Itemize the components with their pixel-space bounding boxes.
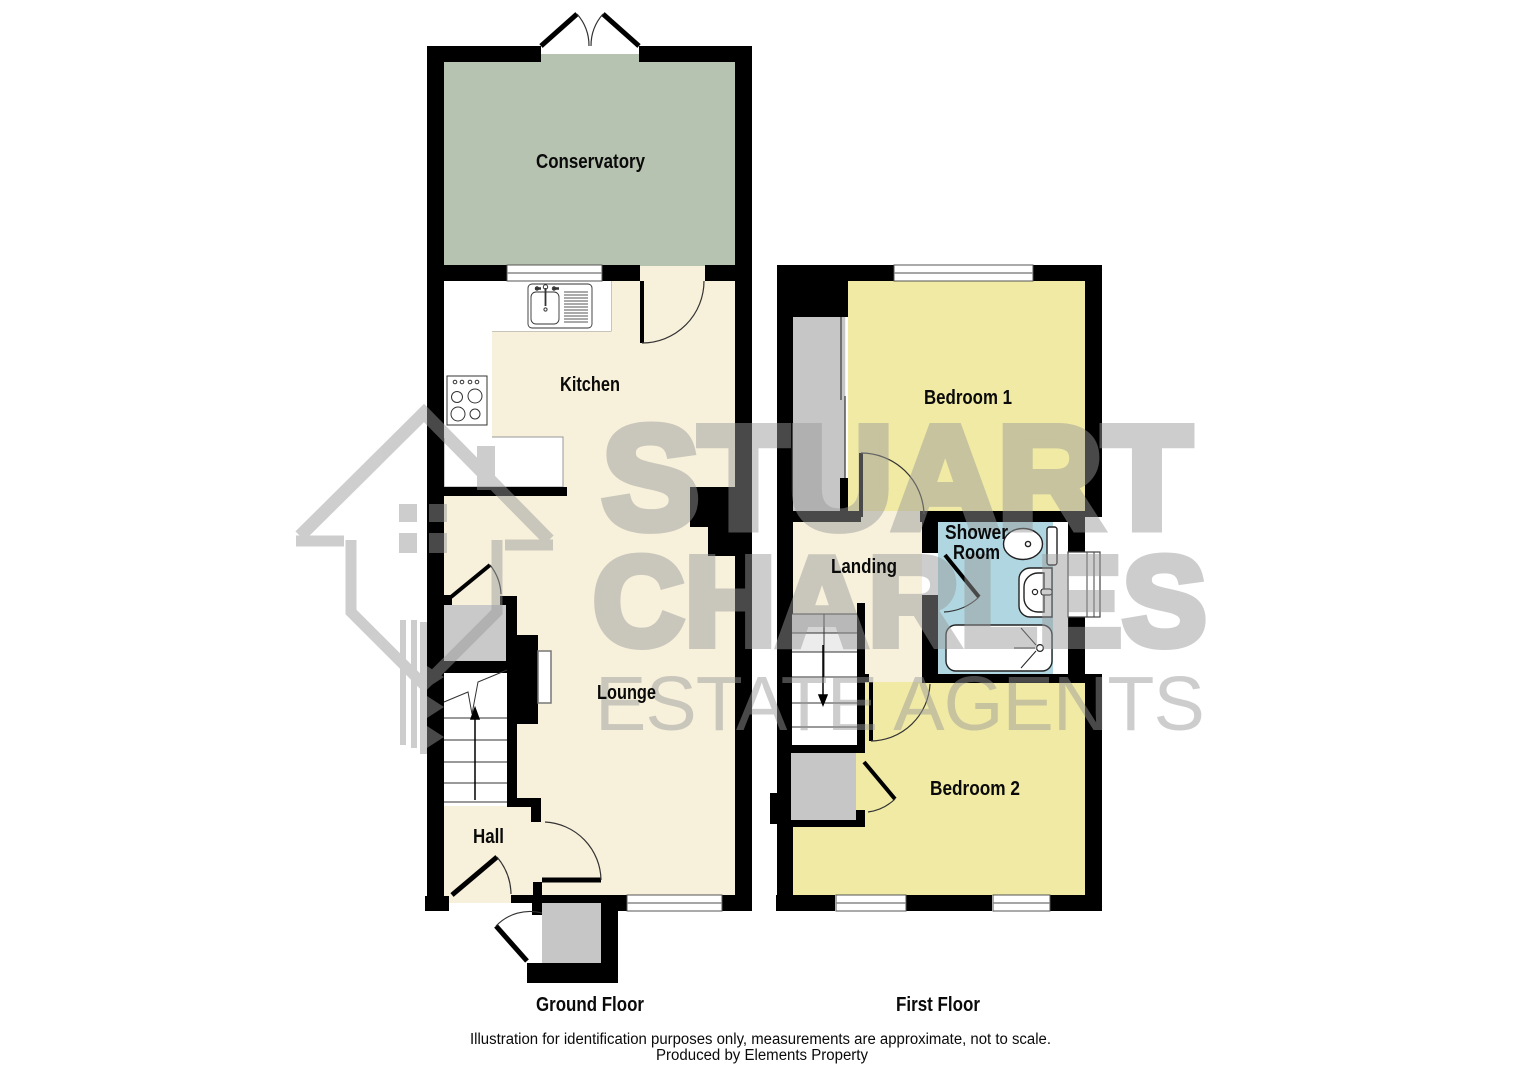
svg-text:Shower: Shower: [945, 522, 1008, 544]
svg-text:Ground Floor: Ground Floor: [536, 994, 644, 1016]
svg-text:Room: Room: [953, 542, 1000, 564]
svg-text:Produced by Elements Property: Produced by Elements Property: [656, 1047, 868, 1064]
svg-text:Landing: Landing: [831, 556, 897, 578]
svg-text:Bedroom 1: Bedroom 1: [924, 387, 1012, 409]
svg-text:First Floor: First Floor: [896, 994, 980, 1016]
svg-text:Conservatory: Conservatory: [536, 151, 646, 173]
svg-text:Bedroom 2: Bedroom 2: [930, 778, 1020, 800]
svg-text:Illustration for identificatio: Illustration for identification purposes…: [470, 1031, 1051, 1048]
svg-text:Lounge: Lounge: [597, 682, 656, 704]
svg-text:Kitchen: Kitchen: [560, 374, 620, 396]
svg-text:Hall: Hall: [473, 826, 504, 848]
svg-text:ESTATE AGENTS: ESTATE AGENTS: [595, 661, 1204, 747]
svg-text:CHARLES: CHARLES: [593, 531, 1207, 672]
